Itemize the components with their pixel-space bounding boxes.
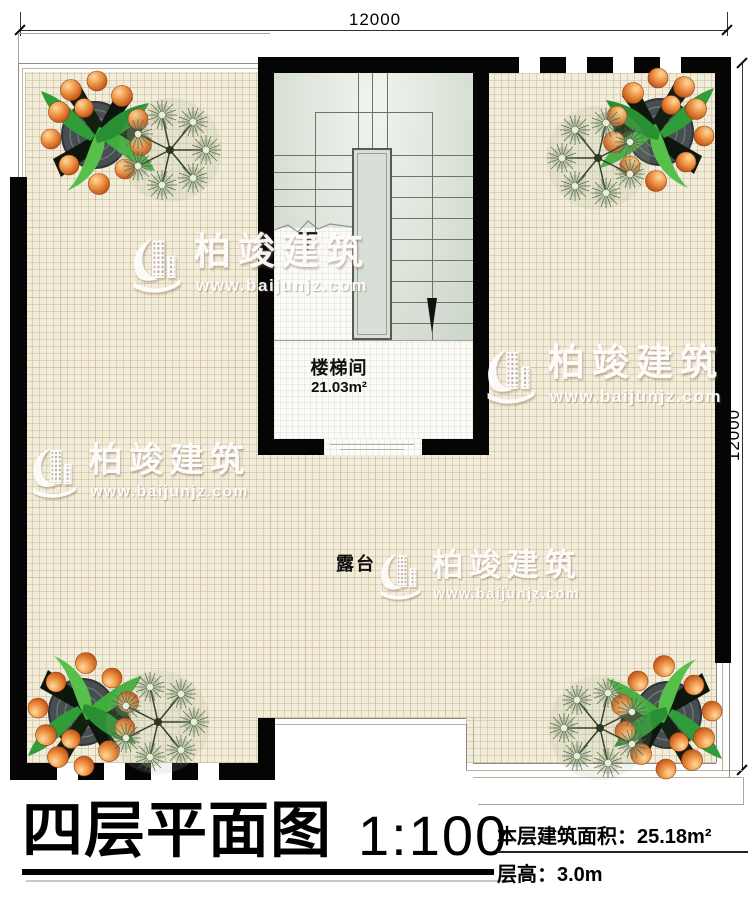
stair-down-arrow-icon: [422, 293, 444, 337]
wall-right: [715, 57, 731, 663]
drawing-title: 四层平面图: [22, 800, 332, 861]
parapet-line: [716, 663, 717, 763]
stair-tread: [392, 239, 473, 240]
stairwell-door-opening: [324, 439, 422, 456]
stair-tread: [392, 176, 473, 177]
parapet-line: [275, 724, 466, 725]
railing-top: [519, 57, 684, 73]
terrace-floor-bottom-right: [466, 718, 716, 763]
stair-tread: [392, 260, 473, 261]
wall-left: [10, 177, 27, 780]
floor-plan-canvas: 12000 12000: [0, 0, 750, 901]
terrace-label: 露台: [316, 554, 396, 575]
parapet-line: [473, 763, 716, 764]
stair-tread: [274, 172, 352, 173]
stairwell-interior: 下 楼梯间 21.03m²: [274, 73, 473, 439]
title-info-separator: [497, 851, 748, 853]
eave-outline: [478, 777, 744, 805]
stair-stringer: [352, 148, 392, 340]
floor-height-label: 层高：3.0m: [497, 858, 603, 887]
stair-tread: [392, 281, 473, 282]
stair-tread: [274, 206, 352, 207]
railing-bottom: [57, 763, 225, 780]
terrace-floor-bottom-left: [25, 718, 258, 763]
door-threshold-line: [340, 449, 404, 450]
top-dimension-label: 12000: [330, 10, 420, 30]
stair-tread: [274, 189, 352, 190]
stairwell-wall-bottom-left: [258, 439, 324, 455]
parapet-line: [722, 663, 723, 770]
wall-bottom-step: [258, 718, 275, 780]
stairwell-wall-right: [473, 57, 489, 455]
parapet-line: [473, 718, 474, 763]
stairwell-room-label: 楼梯间: [274, 358, 404, 379]
door-threshold-line: [330, 444, 414, 445]
stairwell-wall-left: [258, 57, 274, 455]
stair-tread: [392, 197, 473, 198]
parapet-line: [275, 718, 466, 719]
stair-flight-bottom-edge: [274, 340, 473, 341]
title-underline-thin: [26, 880, 506, 882]
parapet-line: [22, 68, 264, 178]
parapet-line: [466, 770, 742, 771]
stair-direction-label: 下: [298, 231, 318, 254]
top-dimension-line: [20, 30, 728, 31]
parapet-line: [466, 724, 467, 770]
title-underline-thick: [22, 869, 494, 875]
stair-landing-edge: [315, 112, 432, 113]
floor-area-label: 本层建筑面积：25.18m²: [497, 820, 712, 849]
stair-stringer-inner: [357, 153, 387, 335]
top-dimension-ext-right: [727, 12, 728, 36]
parapet-line: [729, 663, 730, 777]
drawing-scale: 1:100: [358, 808, 508, 864]
stairwell-wall-bottom-right: [422, 439, 489, 455]
stairwell-area-label: 21.03m²: [274, 379, 404, 396]
stair-tread: [392, 218, 473, 219]
